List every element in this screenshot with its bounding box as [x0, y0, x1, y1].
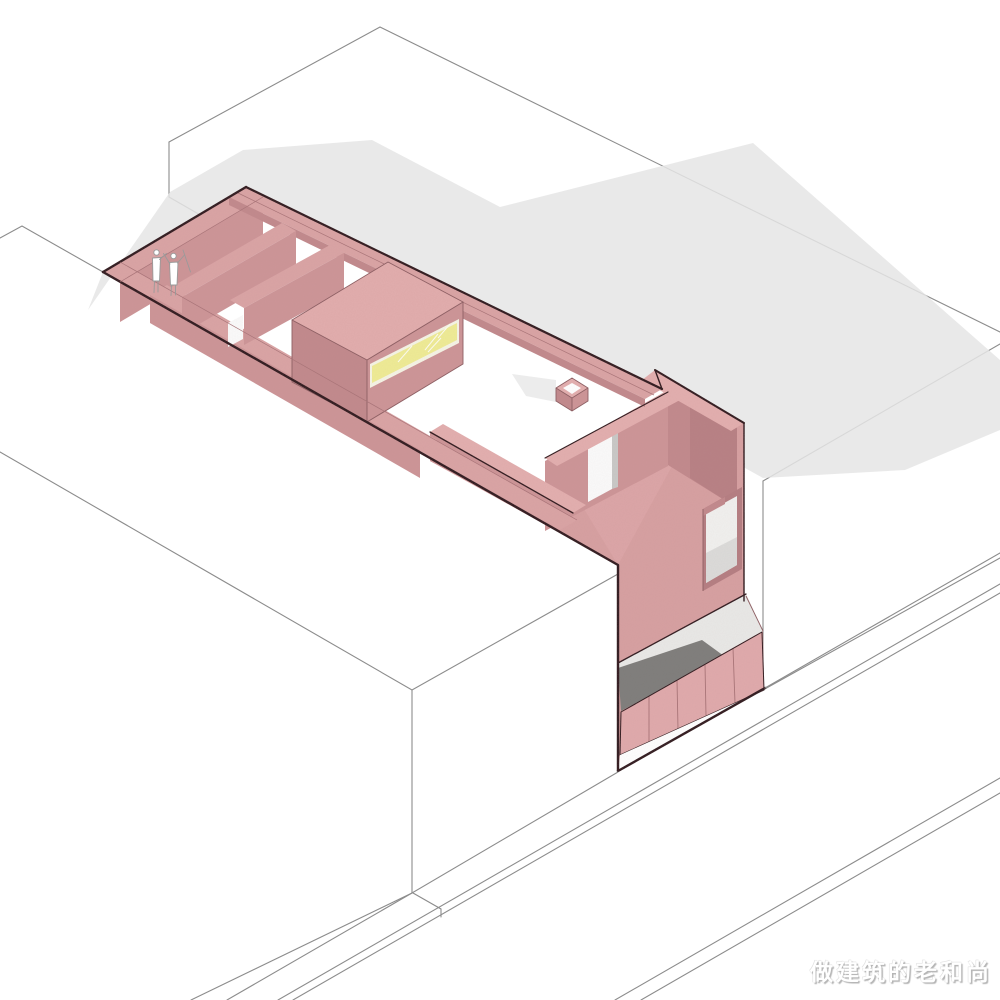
curb-step [413, 893, 441, 917]
skylight-curb [556, 378, 588, 411]
figure-1-body [153, 258, 161, 282]
drawing-canvas [0, 0, 1000, 1000]
neighbor-left-base-edge [227, 893, 412, 1000]
figure-2-body [170, 262, 179, 285]
figure-2-head [171, 253, 176, 258]
neighbor-left-back-corner [0, 226, 103, 272]
figure-1-head [154, 250, 159, 255]
watermark-text: 做建筑的老和尚 [810, 953, 992, 987]
frontage-line-left [191, 772, 618, 1000]
skylight-shadow [512, 374, 556, 402]
axonometric-architecture-diagram: 做建筑的老和尚 [0, 0, 1000, 1000]
